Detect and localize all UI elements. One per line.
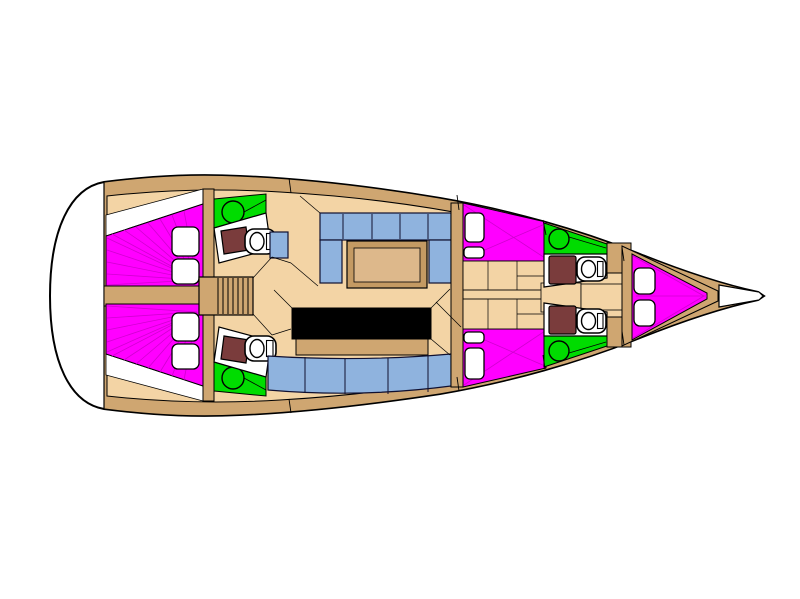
companionway-step-lines xyxy=(218,278,248,314)
salon-sofa-left-arm xyxy=(320,240,342,283)
fwd-head-stbd-seat xyxy=(549,306,576,334)
fwd-head-port-seat xyxy=(549,256,576,284)
companionway-stairs xyxy=(199,277,253,315)
fwd-head-port-toilet-bowl xyxy=(582,261,596,278)
aft-head-stbd-toilet-tank xyxy=(267,341,274,357)
yacht-interior-layout-diagram xyxy=(0,0,800,599)
aft-cabin-stbd-pillow-2 xyxy=(172,344,199,369)
mid-cabin-stbd-pillow-1 xyxy=(464,332,484,343)
aft-cabin-port-pillow-2 xyxy=(172,259,199,284)
mid-cabin-port-pillow-1 xyxy=(465,213,484,242)
salon-bench-lower xyxy=(268,354,451,393)
salon-sofa-top xyxy=(320,213,451,240)
galley-counter xyxy=(292,308,431,339)
mid-cabin-port-cabinets xyxy=(463,261,546,290)
corridor-cabinet-2 xyxy=(581,284,622,310)
mid-bulkhead xyxy=(451,203,463,387)
nav-station-seat xyxy=(270,232,288,258)
aft-cabin-port-pillow-1 xyxy=(172,227,199,256)
mid-cabin-port-pillow-2 xyxy=(464,247,484,258)
fwd-head-stbd-toilet-bowl xyxy=(582,313,596,330)
aft-head-port-toilet-bowl xyxy=(250,233,264,251)
aft-head-stbd-toilet-bowl xyxy=(250,340,264,358)
salon-table-top xyxy=(354,248,420,282)
mid-cabin-stbd-pillow-2 xyxy=(465,348,484,379)
vberth-pillow-2 xyxy=(634,300,655,326)
fwd-head-port-sink-circle xyxy=(549,229,569,249)
fwd-head-stbd-toilet-tank xyxy=(598,314,604,329)
galley-lower-cabinet xyxy=(296,339,428,355)
aft-cabin-stbd-pillow-1 xyxy=(172,313,199,341)
salon-sofa-right-arm xyxy=(429,240,451,283)
boat-floorplan-svg xyxy=(0,0,800,599)
aft-cabins-divider xyxy=(104,286,203,306)
fwd-head-port-toilet-tank xyxy=(598,262,604,277)
bow-anchor-locker xyxy=(719,285,763,307)
fwd-head-stbd-sink-circle xyxy=(549,341,569,361)
vberth-pillow-1 xyxy=(634,268,655,294)
